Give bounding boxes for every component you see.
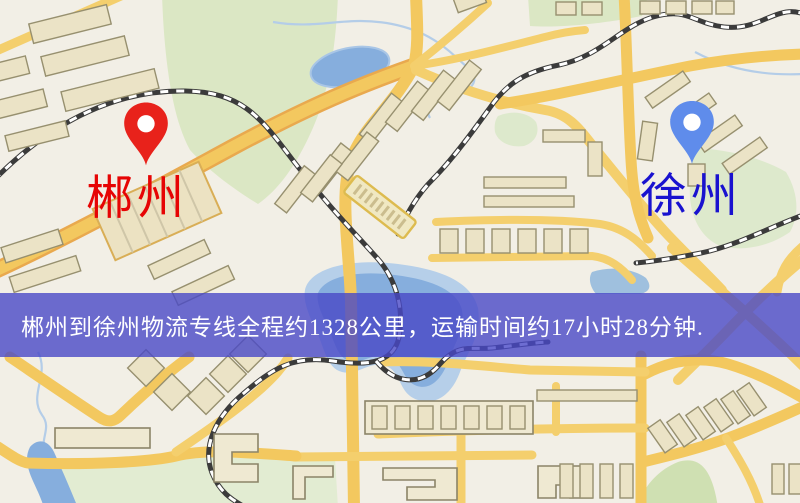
building xyxy=(383,468,457,500)
destination-city-label: 徐州 xyxy=(640,174,742,221)
building xyxy=(55,428,150,448)
building xyxy=(484,177,566,188)
building xyxy=(5,121,69,152)
building xyxy=(637,121,657,161)
origin-city-label: 郴州 xyxy=(86,176,188,223)
building xyxy=(666,1,686,14)
building xyxy=(395,406,410,429)
building xyxy=(580,464,593,498)
building xyxy=(543,130,585,142)
building xyxy=(466,229,484,253)
building xyxy=(0,89,47,119)
building xyxy=(41,36,129,76)
building xyxy=(441,406,456,429)
road xyxy=(414,0,417,66)
building xyxy=(492,229,510,253)
map-canvas xyxy=(0,0,800,503)
origin-pin[interactable] xyxy=(120,100,172,170)
pin-hole xyxy=(137,115,154,132)
building xyxy=(510,406,525,429)
park xyxy=(636,460,718,503)
pin-body xyxy=(124,103,168,166)
building xyxy=(588,142,602,176)
logistics-route-map: 郴州 徐州 郴州到徐州物流专线全程约1328公里，运输时间约17小时28分钟. xyxy=(0,0,800,503)
road xyxy=(726,438,760,503)
building xyxy=(537,390,637,401)
pin-body xyxy=(670,101,714,164)
building xyxy=(570,229,588,253)
building xyxy=(29,5,111,44)
map-pin-icon xyxy=(666,99,718,168)
building xyxy=(487,406,502,429)
route-info-banner: 郴州到徐州物流专线全程约1328公里，运输时间约17小时28分钟. xyxy=(0,293,800,357)
pin-hole xyxy=(683,114,700,131)
building xyxy=(772,464,784,494)
building xyxy=(464,406,479,429)
building xyxy=(640,1,660,14)
building xyxy=(789,464,800,494)
building xyxy=(560,464,573,498)
building xyxy=(440,229,458,253)
building xyxy=(716,1,734,14)
building xyxy=(544,229,562,253)
building xyxy=(0,56,30,82)
stream xyxy=(37,352,46,450)
building xyxy=(556,2,576,15)
building xyxy=(484,196,574,207)
building xyxy=(418,406,433,429)
map-pin-icon xyxy=(120,100,172,170)
building xyxy=(692,1,712,14)
building xyxy=(620,464,633,498)
building xyxy=(372,406,387,429)
building xyxy=(148,240,211,280)
building xyxy=(600,464,613,498)
route-info-text: 郴州到徐州物流专线全程约1328公里，运输时间约17小时28分钟. xyxy=(0,308,704,342)
park xyxy=(495,113,538,147)
destination-pin[interactable] xyxy=(666,99,718,168)
building xyxy=(582,2,602,15)
building xyxy=(518,229,536,253)
road xyxy=(645,360,800,398)
road xyxy=(295,455,532,457)
